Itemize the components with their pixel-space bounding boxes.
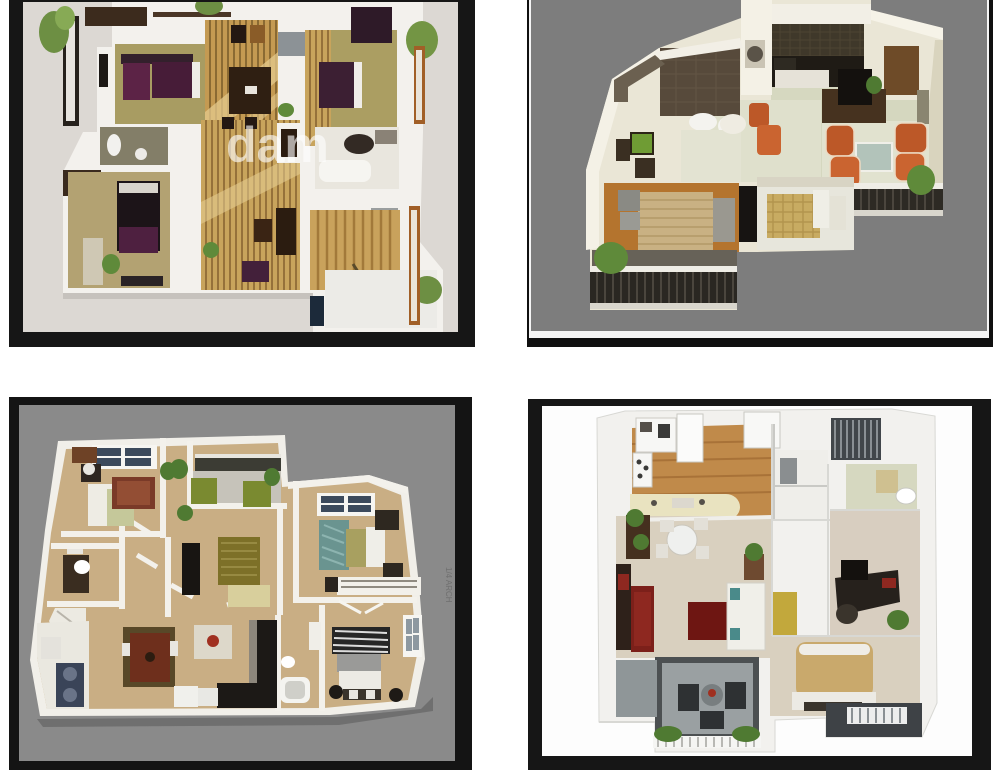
svg-text:dam: dam [226,117,329,173]
svg-text:1/4 ARCH: 1/4 ARCH [444,567,453,603]
